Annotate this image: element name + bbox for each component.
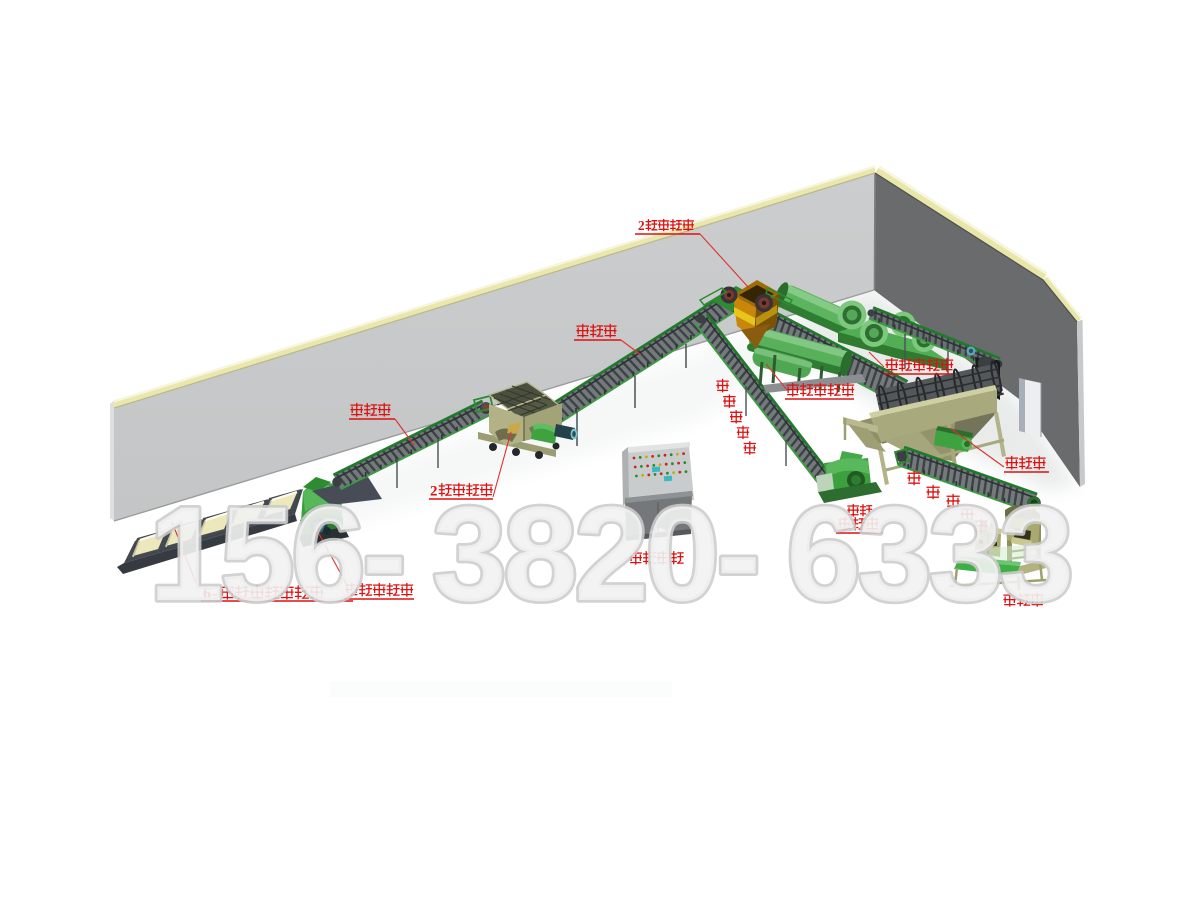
svg-text:156-3820-6333: 156-3820-6333 — [149, 480, 1071, 629]
svg-text:2: 2 — [638, 218, 645, 233]
